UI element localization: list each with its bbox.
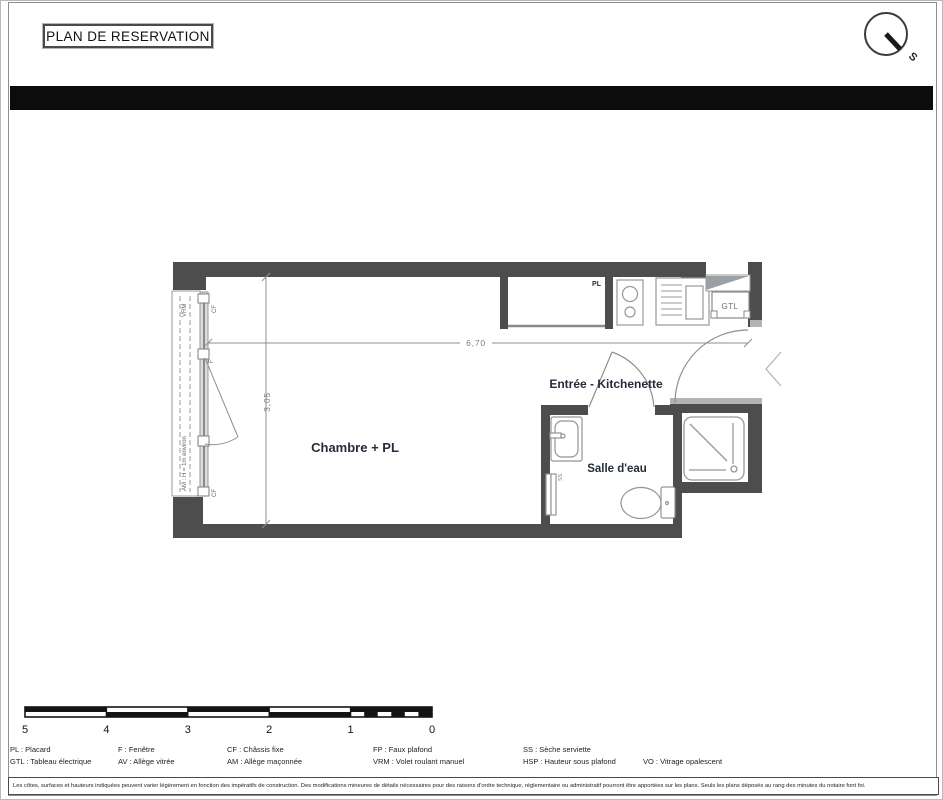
north-arrow: S <box>865 13 919 64</box>
legend-item: GTL : Tableau électrique <box>10 756 91 768</box>
room-labels: Chambre + PL Entrée - Kitchenette Salle … <box>311 377 663 475</box>
legend-item: AM : Allège maçonnée <box>227 756 302 768</box>
legend-item: CF : Châssis fixe <box>227 744 302 756</box>
south-label: S <box>906 50 919 64</box>
towel-radiator-label: SS <box>558 473 564 481</box>
gtl-label: GTL <box>721 302 738 311</box>
bathroom-wall-top-left <box>541 405 588 415</box>
chambre-label: Chambre + PL <box>311 440 399 455</box>
shower-wall-top-light <box>670 398 762 404</box>
dimension-height: 3,05 <box>262 273 272 528</box>
scale-number-4: 4 <box>103 724 109 736</box>
legend-item: VO : Vitrage opalescent <box>643 756 722 768</box>
gtl-box: GTL <box>711 292 750 318</box>
scale-bar-segments <box>25 707 432 717</box>
scale-number-0: 0 <box>429 724 435 736</box>
window-casement-arc <box>205 437 238 445</box>
cf-top-label: CF <box>212 305 218 313</box>
legend-col-1: PL : Placard GTL : Tableau électrique <box>10 744 91 767</box>
closet-pl-label: PL <box>592 281 602 288</box>
legend-item: FP : Faux plafond <box>373 744 464 756</box>
legend-col-4: FP : Faux plafond VRM : Volet roulant ma… <box>373 744 464 767</box>
disclaimer-bar: Les côtes, surfaces et hauteurs indiquée… <box>8 777 939 795</box>
scale-number-5: 5 <box>22 724 28 736</box>
disclaimer-text: Les côtes, surfaces et hauteurs indiquée… <box>13 783 865 789</box>
window-left: VRM AM : H = 1m environ CF F CF <box>172 291 238 497</box>
washbasin-faucet <box>550 433 561 438</box>
north-needle <box>886 34 900 49</box>
toilet-button <box>666 502 669 505</box>
entrance-door <box>675 330 781 403</box>
closet-jamb-left <box>500 277 508 329</box>
legend-col-2: F : Fenêtre AV : Allège vitrée <box>118 744 175 767</box>
toilet-bowl <box>621 488 661 519</box>
dim-width-label: 6,70 <box>466 338 486 348</box>
entrance-transom <box>706 275 750 291</box>
am-label: AM : H = 1m environ <box>182 436 188 491</box>
entrance-door-arc <box>675 330 748 403</box>
legend-item: F : Fenêtre <box>118 744 175 756</box>
legend-item: PL : Placard <box>10 744 91 756</box>
legend-item: AV : Allège vitrée <box>118 756 175 768</box>
cooktop-burner-large <box>623 287 638 302</box>
legend-col-3: CF : Châssis fixe AM : Allège maçonnée <box>227 744 302 767</box>
vrm-label: VRM <box>182 304 188 317</box>
washbasin-bowl <box>555 421 578 457</box>
shower <box>684 417 744 480</box>
closet-interior <box>508 277 605 325</box>
f-label: F <box>209 359 215 363</box>
shower-wall-bottom <box>673 482 762 493</box>
wall-corner-top-left <box>173 262 206 290</box>
legend-col-6: VO : Vitrage opalescent <box>643 756 722 768</box>
dimension-width: 6,70 <box>204 336 752 349</box>
scale-number-3: 3 <box>185 724 191 736</box>
scale-bar: 5 4 3 2 1 0 <box>22 707 435 736</box>
towel-radiator-a <box>546 474 551 515</box>
scale-number-2: 2 <box>266 724 272 736</box>
dim-height-label: 3,05 <box>262 392 272 412</box>
shower-wall-right <box>748 404 762 493</box>
entree-label: Entrée - Kitchenette <box>549 377 663 391</box>
floor-plan-page: { "page": { "title": "PLAN DE RESERVATIO… <box>0 0 943 800</box>
wall-right-endcap <box>750 320 762 327</box>
legend-col-5: SS : Sèche serviette HSP : Hauteur sous … <box>523 744 616 767</box>
closet-pl: PL <box>508 277 605 326</box>
salle-eau-label: Salle d'eau <box>587 463 647 475</box>
window-casement-leaf <box>205 358 238 437</box>
legend-item: VRM : Volet roulant manuel <box>373 756 464 768</box>
washbasin-faucet-dot <box>561 434 565 438</box>
floor-plan-drawing: S PL <box>0 0 943 800</box>
gtl-hinge-left <box>711 311 717 318</box>
gtl-hinge-right <box>744 311 750 318</box>
wall-top <box>175 262 706 277</box>
towel-radiator-b <box>551 474 556 515</box>
scale-number-1: 1 <box>348 724 354 736</box>
scale-bar-numbers: 5 4 3 2 1 0 <box>22 724 435 736</box>
sink-basin <box>686 286 703 319</box>
closet-jamb-right <box>605 277 613 329</box>
cf-bottom-label: CF <box>212 489 218 497</box>
legend-item: SS : Sèche serviette <box>523 744 616 756</box>
entrance-opening-chevron <box>766 352 781 386</box>
kitchen-fixtures <box>617 278 709 325</box>
legend-item: HSP : Hauteur sous plafond <box>523 756 616 768</box>
wall-bottom <box>173 524 682 538</box>
cooktop-burner-small <box>625 307 635 317</box>
